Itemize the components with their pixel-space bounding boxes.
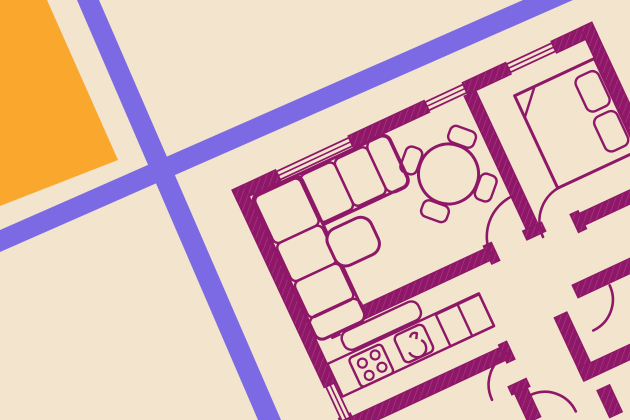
floor-plan-scene <box>0 0 630 420</box>
illustration-canvas <box>0 0 630 420</box>
